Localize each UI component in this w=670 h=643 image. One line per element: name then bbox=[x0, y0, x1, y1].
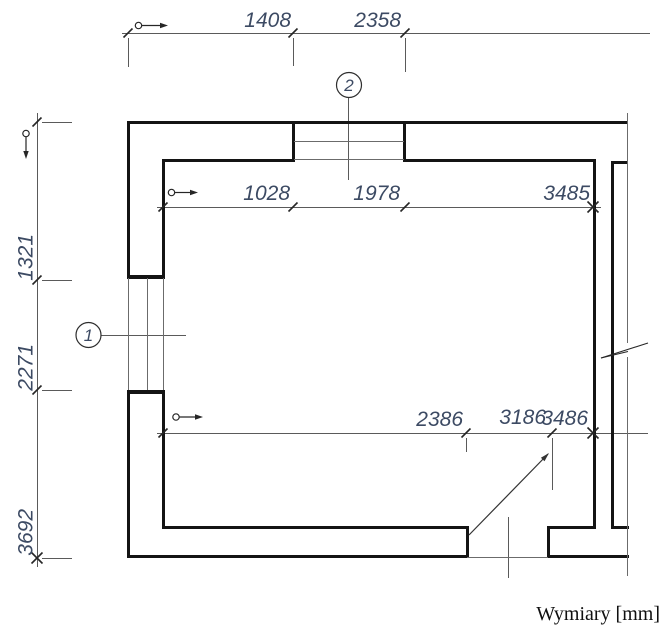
floor-plan: 1408 2358 1028 1978 3485 2386 3186 3486 … bbox=[0, 0, 670, 643]
wall-break-icon bbox=[601, 343, 648, 358]
origin-marker-top-outer bbox=[135, 22, 168, 28]
tick-marks-bottom-inner bbox=[159, 428, 599, 439]
origin-marker-top-inner bbox=[168, 189, 198, 195]
dim-label-left-outer-1: 1321 bbox=[16, 234, 37, 281]
drawing-annotations bbox=[0, 0, 670, 643]
dim-label-bottom-inner-3: 3486 bbox=[541, 408, 588, 429]
door-swing-line bbox=[469, 453, 549, 535]
dim-label-left-outer-2: 2271 bbox=[16, 344, 37, 391]
origin-marker-bottom-inner bbox=[173, 414, 203, 420]
dim-label-top-inner-2: 1978 bbox=[353, 183, 400, 204]
dim-label-left-outer-3: 3692 bbox=[16, 509, 37, 556]
dim-label-top-inner-3: 3485 bbox=[543, 183, 590, 204]
opening-label-2: 2 bbox=[336, 77, 362, 94]
dim-label-top-outer-2: 2358 bbox=[354, 10, 401, 31]
dim-label-bottom-inner-1: 2386 bbox=[416, 409, 463, 430]
dim-label-top-outer-1: 1408 bbox=[244, 10, 291, 31]
dim-label-bottom-inner-2: 3186 bbox=[499, 407, 546, 428]
dim-label-top-inner-1: 1028 bbox=[243, 183, 290, 204]
units-caption: Wymiary [mm] bbox=[536, 603, 660, 625]
tick-marks-left-outer bbox=[32, 118, 43, 564]
origin-marker-left-outer bbox=[23, 130, 29, 159]
opening-label-1: 1 bbox=[76, 327, 102, 344]
